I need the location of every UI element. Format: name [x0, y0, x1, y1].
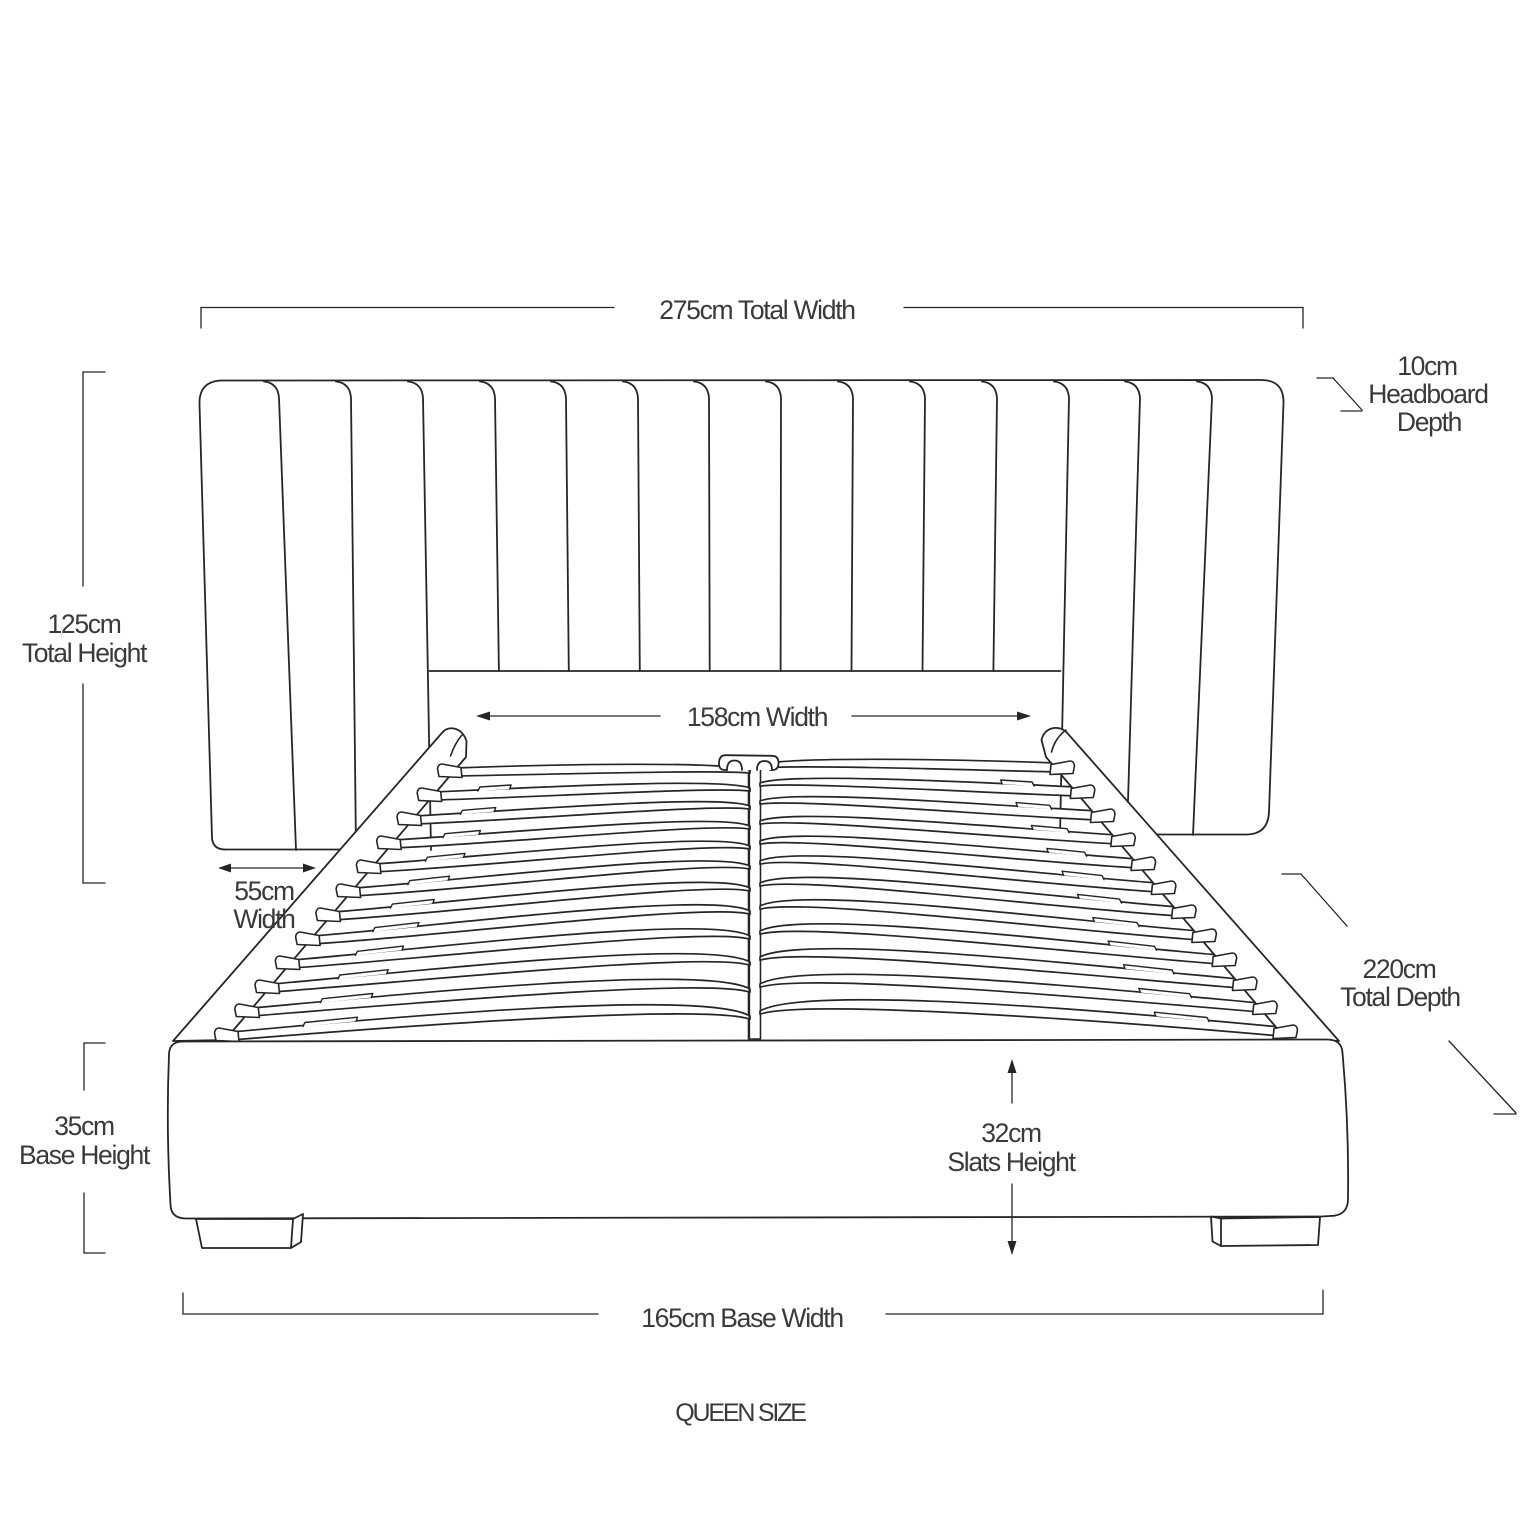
svg-text:220cm: 220cm	[1362, 954, 1435, 984]
svg-text:QUEEN SIZE: QUEEN SIZE	[675, 1399, 806, 1427]
svg-text:Total Depth: Total Depth	[1340, 982, 1460, 1012]
svg-text:165cm Base Width: 165cm Base Width	[641, 1303, 843, 1333]
svg-text:10cm: 10cm	[1397, 351, 1457, 381]
svg-text:Slats Height: Slats Height	[947, 1147, 1076, 1177]
svg-text:Base Height: Base Height	[19, 1140, 151, 1170]
svg-text:Total Height: Total Height	[22, 638, 148, 668]
svg-text:32cm: 32cm	[981, 1118, 1041, 1148]
svg-text:35cm: 35cm	[54, 1111, 114, 1141]
svg-text:55cm: 55cm	[234, 876, 294, 906]
svg-text:Depth: Depth	[1397, 407, 1462, 437]
svg-text:275cm Total Width: 275cm Total Width	[659, 295, 855, 325]
svg-text:125cm: 125cm	[47, 609, 120, 639]
svg-text:158cm Width: 158cm Width	[687, 702, 828, 732]
svg-text:Width: Width	[233, 904, 295, 934]
svg-text:Headboard: Headboard	[1368, 379, 1488, 409]
